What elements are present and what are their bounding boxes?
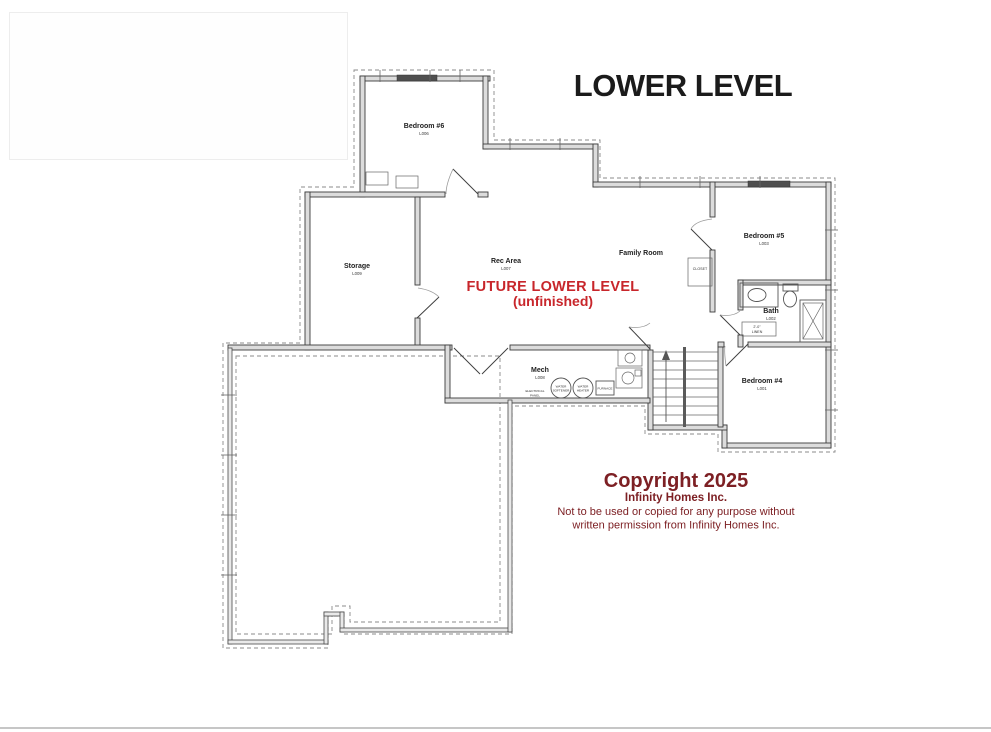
stair-rail bbox=[683, 347, 686, 427]
page-title: LOWER LEVEL bbox=[574, 68, 792, 103]
walls-lower-left-room bbox=[228, 348, 512, 644]
room-code-bedroom4: L001 bbox=[757, 386, 767, 391]
room-label-rec-area: Rec Area bbox=[491, 258, 521, 265]
electrical-panel-label-2: PANEL bbox=[530, 394, 540, 398]
linen-label: LINEN bbox=[752, 330, 763, 334]
floorplan-sheet: LOWER LEVEL Bedroom #6 L006 Storage L009… bbox=[0, 0, 991, 732]
room-code-mech: L008 bbox=[535, 375, 545, 380]
vanity-counter bbox=[740, 283, 778, 307]
toilet-icon bbox=[784, 291, 797, 307]
room-label-storage: Storage bbox=[344, 263, 370, 270]
copyright-line1: Copyright 2025 bbox=[604, 470, 748, 492]
room-label-bedroom4: Bedroom #4 bbox=[742, 378, 783, 385]
room-label-family-room: Family Room bbox=[619, 250, 663, 257]
room-code-bedroom6: L006 bbox=[419, 131, 429, 136]
copyright-line2: Infinity Homes Inc. bbox=[625, 492, 727, 504]
bedroom6-closet bbox=[366, 172, 418, 188]
stairs bbox=[653, 347, 718, 427]
room-label-mech: Mech bbox=[531, 367, 549, 374]
shower-icon bbox=[800, 300, 826, 342]
room-code-bath: L002 bbox=[766, 316, 776, 321]
room-label-bedroom5: Bedroom #5 bbox=[744, 233, 785, 240]
door-bedroom5 bbox=[691, 219, 712, 250]
room-label-bath: Bath bbox=[763, 308, 779, 315]
electrical-panel-label-1: ELECTRICAL bbox=[525, 389, 544, 393]
room-code-rec-area: L007 bbox=[501, 266, 511, 271]
window-icon bbox=[748, 181, 790, 187]
door-storage bbox=[417, 288, 439, 318]
copyright-line3: Not to be used or copied for any purpose… bbox=[557, 506, 794, 518]
blank-corner-patch bbox=[9, 12, 348, 160]
water-heater-label-2: HEATER bbox=[577, 389, 590, 393]
room-label-bedroom6: Bedroom #6 bbox=[404, 123, 445, 130]
stair-arrowhead-icon bbox=[662, 350, 670, 360]
room-code-bedroom5: L003 bbox=[759, 241, 769, 246]
copyright-line4: written permission from Infinity Homes I… bbox=[571, 520, 779, 532]
window-icon bbox=[397, 75, 437, 81]
sheet-bottom-border bbox=[0, 727, 991, 729]
furnace-label: FURNACE bbox=[598, 387, 613, 391]
door-bedroom6 bbox=[446, 169, 478, 194]
future-level-sublabel: (unfinished) bbox=[513, 293, 593, 309]
closet-label: CLOSET bbox=[693, 267, 708, 271]
linen-dim-label: 2'-0" bbox=[753, 325, 761, 329]
door-bedroom4 bbox=[725, 344, 748, 366]
sink-icon bbox=[748, 289, 766, 302]
water-softener-label-2: SOFTENER bbox=[553, 389, 571, 393]
hvac-unit-icon bbox=[616, 350, 642, 388]
doors bbox=[417, 169, 748, 374]
door-bath bbox=[720, 311, 740, 335]
room-code-storage: L009 bbox=[352, 271, 362, 276]
bedroom5-closet bbox=[688, 258, 712, 286]
